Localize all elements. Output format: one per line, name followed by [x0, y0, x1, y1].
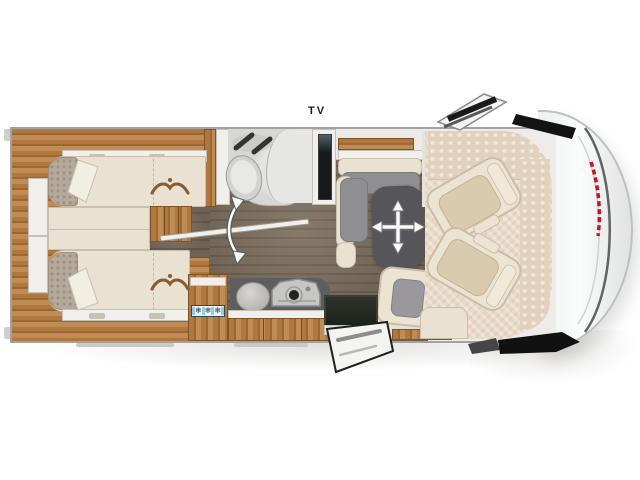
toilet-seat — [228, 158, 261, 197]
vehicle-body: ❄❄❄ — [10, 127, 556, 343]
shelf-handle — [89, 313, 105, 319]
overhead-shelf — [62, 309, 209, 321]
bed-pillow — [48, 157, 78, 206]
bed-seam — [153, 253, 154, 310]
tv-screen — [318, 134, 332, 200]
entry-step — [324, 295, 378, 327]
snowflake-icon: ❄ — [195, 307, 202, 315]
tv-cabinet — [312, 129, 336, 205]
kitchen-sink — [236, 282, 270, 312]
rear-wardrobe — [28, 236, 48, 293]
overhead-cabinet — [336, 129, 428, 160]
fridge-top — [190, 277, 226, 286]
bed-steps — [150, 206, 192, 242]
snowflake-icon: ❄ — [205, 307, 212, 315]
cab-rear-trim — [420, 307, 468, 339]
cabinet-divider — [301, 319, 302, 340]
rear-wardrobe — [28, 178, 48, 236]
bathroom-sink — [266, 129, 312, 203]
tv-label: TV — [308, 105, 326, 117]
entry-sill — [324, 325, 380, 335]
step-edge — [164, 207, 165, 241]
skirt-trim — [76, 343, 174, 347]
platform-divider — [49, 229, 149, 230]
step-edge — [178, 207, 179, 241]
dinette-bench-side-cushion — [340, 178, 368, 242]
snowflake-icon: ❄ — [214, 307, 221, 315]
dinette-table — [371, 185, 426, 269]
bed-seam — [153, 159, 154, 205]
shelf-handle — [149, 313, 165, 319]
dinette-bench-end — [336, 242, 356, 268]
cabinet-wood-trim — [338, 138, 414, 150]
driver-mirror — [438, 94, 506, 130]
cabinet-divider — [263, 319, 264, 340]
bed-platform — [48, 207, 150, 250]
fridge-snowflake-panel: ❄❄❄ — [191, 305, 225, 317]
fridge-tick — [221, 307, 224, 315]
kitchen-fridge: ❄❄❄ — [188, 274, 228, 341]
floorplan-canvas: TV — [0, 0, 640, 480]
dashboard-side — [520, 159, 550, 331]
bed-pillow — [48, 252, 78, 310]
skirt-trim — [234, 343, 308, 347]
kitchen-cabinet-fronts — [228, 318, 332, 341]
kitchen-counter — [228, 278, 332, 341]
